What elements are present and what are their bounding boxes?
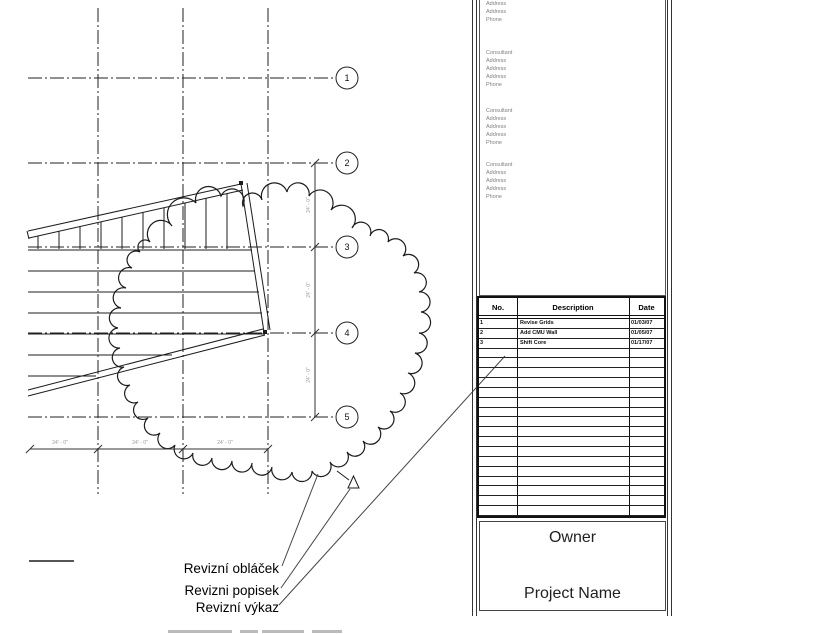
consultant-line: Address: [486, 185, 586, 193]
drawing-canvas: 24' - 0" 24' - 0" 24' - 0" 24' - 0" 24' …: [0, 0, 840, 634]
dim-text-h2: 24' - 0": [132, 440, 148, 446]
consultant-line: Phone: [486, 16, 586, 24]
header-date: Date: [629, 300, 664, 316]
header-rule: [479, 315, 664, 316]
grid-bubble-4: 4: [344, 328, 349, 338]
revision-cell-description: Revise Grids: [520, 319, 628, 328]
revision-row: [479, 496, 664, 506]
consultant-block: ConsultantAddressAddressAddressPhone: [486, 161, 586, 201]
revision-row: 2Add CMU Wall01/05/07: [479, 329, 664, 339]
revision-row: [479, 467, 664, 477]
revision-row: [479, 477, 664, 487]
dim-text-v3: 24' - 0": [306, 367, 312, 383]
owner-project-block: Owner Project Name: [479, 521, 666, 611]
revision-schedule: No. Description Date 1Revise Grids01/03/…: [477, 296, 666, 518]
revision-row: [479, 418, 664, 428]
dim-text-v2: 24' - 0": [306, 282, 312, 298]
consultant-line: Address: [486, 73, 586, 81]
revision-row: [479, 486, 664, 496]
consultant-area: AddressAddressPhoneConsultantAddressAddr…: [479, 0, 666, 296]
revision-cell-description: Shift Core: [520, 339, 628, 348]
revision-row: 1Revise Grids01/03/07: [479, 319, 664, 329]
dimension-texts: 24' - 0" 24' - 0" 24' - 0" 24' - 0" 24' …: [52, 197, 312, 446]
revision-row: [479, 506, 664, 516]
roof-hatch: [38, 194, 227, 249]
label-revision-tag: Revizni popisek: [120, 583, 279, 598]
building-section: [27, 181, 270, 396]
revision-row: [479, 358, 664, 368]
consultant-line: Address: [486, 123, 586, 131]
revision-cell-date: 01/17/07: [631, 339, 664, 348]
clipped-text-fragment: [168, 630, 342, 633]
revision-row: [479, 368, 664, 378]
revision-cell-no: 3: [480, 339, 516, 348]
dim-text-h3: 24' - 0": [217, 440, 233, 446]
consultant-line: Address: [486, 65, 586, 73]
revision-cell-description: Add CMU Wall: [520, 329, 628, 338]
label-revision-schedule: Revizní výkaz: [120, 600, 279, 615]
revision-row: [479, 427, 664, 437]
grid-lines: [28, 8, 336, 494]
revision-row: [479, 398, 664, 408]
project-name-label: Project Name: [480, 585, 665, 603]
header-description: Description: [517, 300, 629, 316]
revision-row: [479, 408, 664, 418]
consultant-block: ConsultantAddressAddressAddressPhone: [486, 49, 586, 89]
revision-row: [479, 349, 664, 359]
consultant-line: Phone: [486, 193, 586, 201]
revision-cell-no: 2: [480, 329, 516, 338]
consultant-line: Address: [486, 177, 586, 185]
revision-tag: [337, 471, 359, 488]
consultant-line: Phone: [486, 139, 586, 147]
owner-label: Owner: [480, 529, 665, 547]
consultant-line: Phone: [486, 81, 586, 89]
dim-text-h1: 24' - 0": [52, 440, 68, 446]
grid-bubble-numbers: 1 2 3 4 5: [344, 73, 349, 422]
revision-row: [479, 447, 664, 457]
grid-bubble-5: 5: [344, 412, 349, 422]
revision-cell-date: 01/05/07: [631, 329, 664, 338]
dim-text-v1: 24' - 0": [306, 197, 312, 213]
sheet-border-right-outer: [671, 0, 672, 616]
revision-row: [479, 388, 664, 398]
consultant-line: Address: [486, 0, 586, 8]
consultant-line: Consultant: [486, 161, 586, 169]
consultant-line: Consultant: [486, 107, 586, 115]
grid-bubble-3: 3: [344, 242, 349, 252]
label-revision-cloud: Revizní obláček: [120, 561, 279, 576]
revision-cell-date: 01/03/07: [631, 319, 664, 328]
revision-row: 3Shift Core01/17/07: [479, 339, 664, 349]
consultant-line: Address: [486, 115, 586, 123]
consultant-block: AddressAddressPhone: [486, 0, 586, 24]
sheet-border-right-inner: [667, 0, 668, 616]
consultant-line: Address: [486, 8, 586, 16]
grid-bubble-2: 2: [344, 158, 349, 168]
revision-cell-no: 1: [480, 319, 516, 328]
revision-cloud: [109, 183, 431, 482]
revision-row: [479, 378, 664, 388]
consultant-block: ConsultantAddressAddressAddressPhone: [486, 107, 586, 147]
cad-sheet: 24' - 0" 24' - 0" 24' - 0" 24' - 0" 24' …: [0, 0, 840, 634]
grid-bubble-1: 1: [344, 73, 349, 83]
consultant-line: Address: [486, 57, 586, 65]
consultant-line: Address: [486, 169, 586, 177]
revision-row: [479, 457, 664, 467]
consultant-line: Address: [486, 131, 586, 139]
sheet-border-left-outer: [472, 0, 473, 616]
revision-tag-triangle: [348, 476, 359, 488]
revision-row: [479, 437, 664, 447]
slab-lines: [28, 250, 265, 376]
header-no: No.: [479, 300, 517, 316]
leader-cloud: [282, 474, 318, 566]
consultant-line: Consultant: [486, 49, 586, 57]
